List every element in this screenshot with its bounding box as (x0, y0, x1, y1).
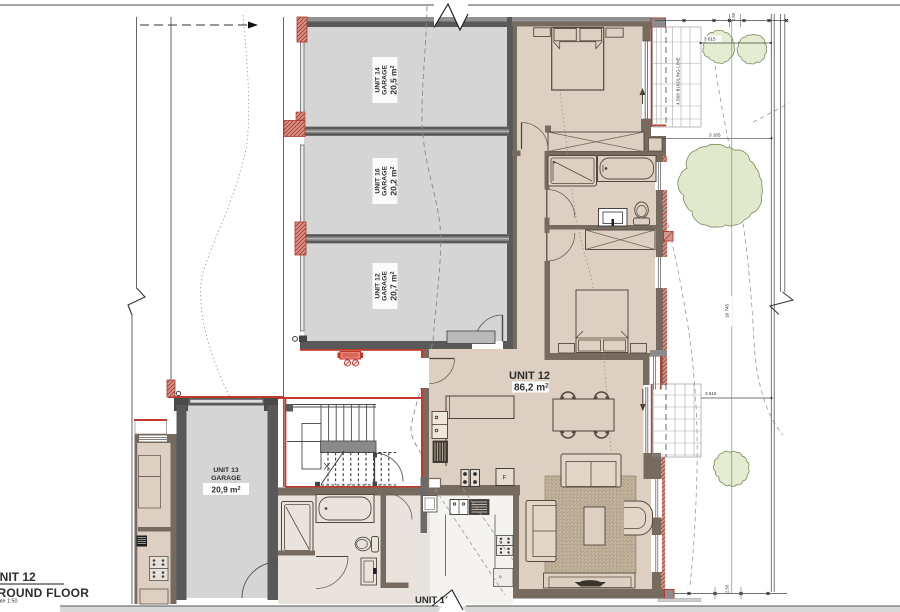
svg-text:20,7 m2: 20,7 m2 (389, 271, 399, 300)
svg-text:UNIT 12: UNIT 12 (375, 273, 382, 299)
svg-text:2.50: 2.50 (725, 584, 730, 593)
svg-text:Scale 1:50: Scale 1:50 (0, 599, 17, 605)
svg-text:UNIT 14: UNIT 14 (375, 67, 382, 93)
svg-text:3.615: 3.615 (705, 391, 717, 396)
svg-text:86,2 m2: 86,2 m2 (514, 383, 549, 394)
svg-text:20,5 m2: 20,5 m2 (389, 65, 399, 94)
svg-text:4.500 BUIDLING LINE: 4.500 BUIDLING LINE (676, 57, 681, 105)
svg-text:GARAGE: GARAGE (382, 166, 389, 196)
svg-text:UNIT 12: UNIT 12 (509, 370, 550, 382)
svg-text:16 745: 16 745 (725, 304, 730, 318)
svg-text:UNIT 12: UNIT 12 (0, 570, 36, 584)
svg-text:GARAGE: GARAGE (211, 475, 241, 482)
svg-text:GARAGE: GARAGE (382, 65, 389, 95)
svg-text:GARAGE: GARAGE (382, 271, 389, 301)
svg-text:20,9 m2: 20,9 m2 (211, 485, 240, 495)
svg-text:2.50: 2.50 (731, 12, 736, 21)
svg-text:UNIT 16: UNIT 16 (375, 168, 382, 194)
svg-text:UNIT 13: UNIT 13 (213, 467, 239, 474)
svg-text:F: F (503, 476, 507, 482)
svg-text:20,2 m2: 20,2 m2 (389, 166, 399, 195)
svg-text:3 615: 3 615 (704, 37, 716, 42)
svg-text:3 165: 3 165 (709, 132, 721, 137)
